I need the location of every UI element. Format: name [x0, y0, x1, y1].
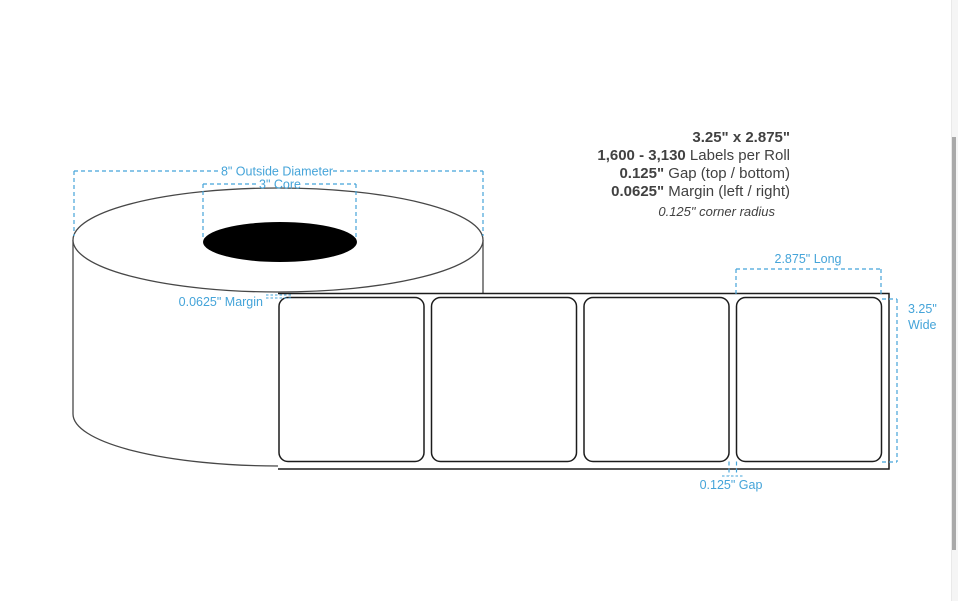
label-roll-diagram: 8" Outside Diameter 3" Core 0.0625" Marg… [0, 0, 958, 601]
spec-margin-value: 0.0625" [611, 183, 664, 200]
label-roll-spec-screenshot: 8" Outside Diameter 3" Core 0.0625" Marg… [0, 0, 958, 601]
spec-gap: 0.125" Gap (top / bottom) [370, 165, 790, 183]
spec-count-value: 1,600 - 3,130 [597, 147, 685, 164]
spec-margin: 0.0625" Margin (left / right) [370, 183, 790, 201]
spec-corner-radius: 0.125" corner radius [370, 201, 790, 220]
dim-long-text: 2.875" Long [775, 252, 842, 266]
dim-wide-text-line2: Wide [908, 318, 937, 332]
dim-long: 2.875" Long [736, 252, 881, 295]
spec-gap-value: 0.125" [619, 165, 664, 182]
dim-margin-text: 0.0625" Margin [179, 295, 263, 309]
spec-count: 1,600 - 3,130 Labels per Roll [370, 147, 790, 165]
spec-count-label: Labels per Roll [686, 147, 790, 164]
dim-gap-text: 0.125" Gap [700, 478, 763, 492]
scrollbar-track[interactable] [951, 0, 958, 601]
dim-wide-text-line1: 3.25" [908, 302, 937, 316]
dim-outside-diameter-text: 8" Outside Diameter [221, 165, 333, 179]
label-sticker-2 [432, 298, 577, 462]
dim-core-text: 3" Core [259, 178, 301, 192]
spec-block: 3.25" x 2.875" 1,600 - 3,130 Labels per … [370, 129, 790, 220]
scrollbar-thumb[interactable] [952, 137, 956, 550]
spec-gap-label: Gap (top / bottom) [664, 165, 790, 182]
label-sticker-4 [737, 298, 882, 462]
spec-margin-label: Margin (left / right) [664, 183, 790, 200]
label-sticker-1 [279, 298, 424, 462]
label-sticker-3 [584, 298, 729, 462]
dim-wide: 3.25" Wide [882, 299, 937, 462]
spec-size: 3.25" x 2.875" [370, 129, 790, 147]
roll-core-hole [203, 222, 357, 262]
